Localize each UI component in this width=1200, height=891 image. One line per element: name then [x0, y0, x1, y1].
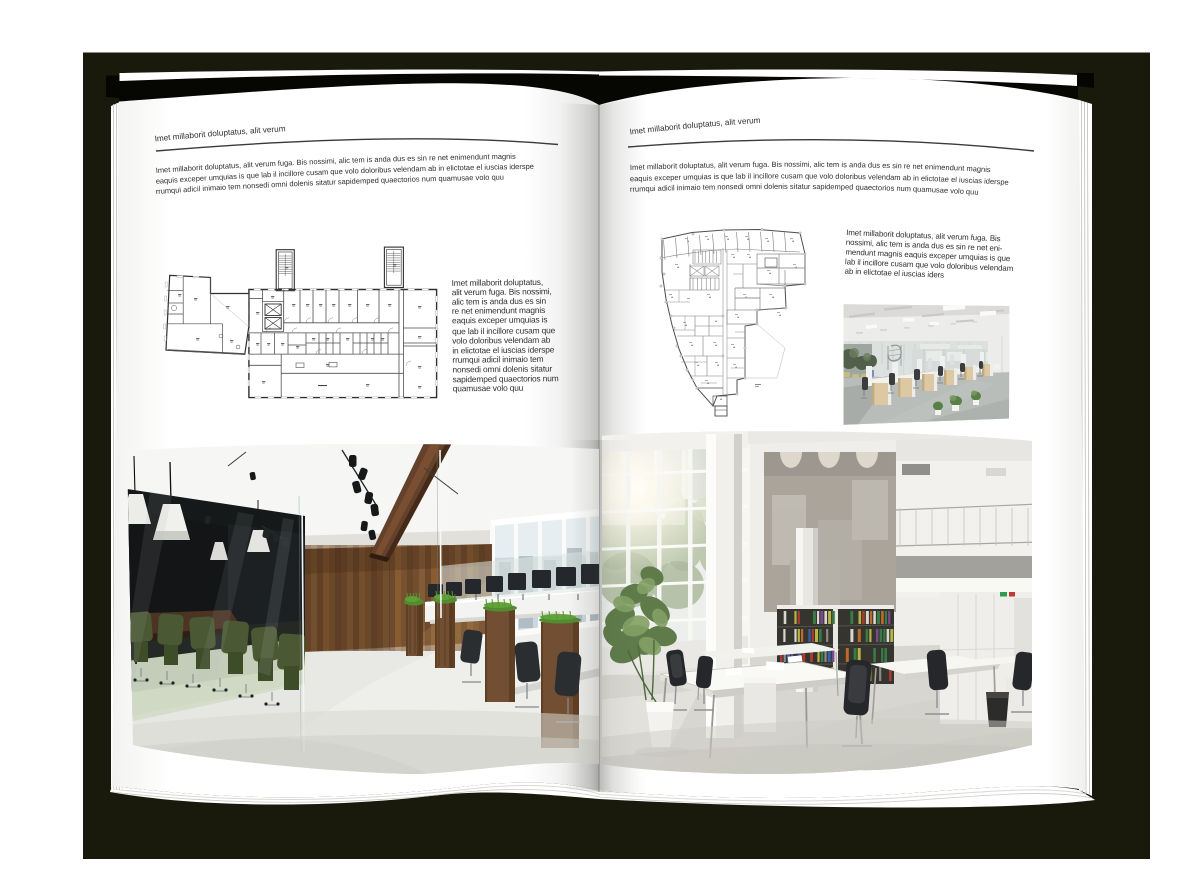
svg-text:eaquis exceper umquias is: eaquis exceper umquias is	[452, 314, 548, 325]
svg-text:quamusae volo quu: quamusae volo quu	[453, 383, 524, 394]
